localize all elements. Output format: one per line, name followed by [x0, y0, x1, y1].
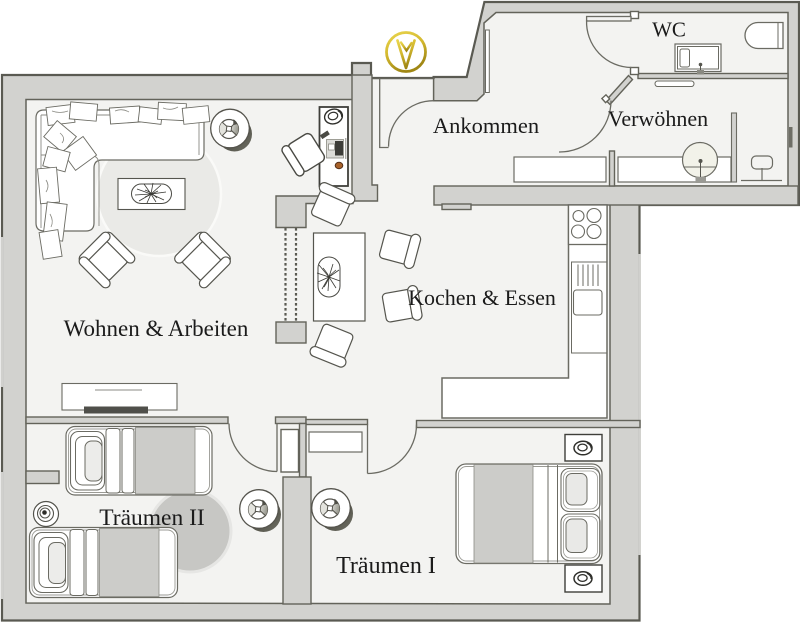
- svg-text:Wohnen & Arbeiten: Wohnen & Arbeiten: [64, 316, 249, 341]
- svg-text:Träumen I: Träumen I: [336, 553, 436, 579]
- svg-text:Kochen & Essen: Kochen & Essen: [408, 285, 556, 310]
- svg-text:Träumen II: Träumen II: [99, 505, 205, 531]
- svg-text:WC: WC: [652, 18, 686, 42]
- svg-text:Ankommen: Ankommen: [433, 113, 539, 138]
- svg-text:Verwöhnen: Verwöhnen: [608, 106, 708, 131]
